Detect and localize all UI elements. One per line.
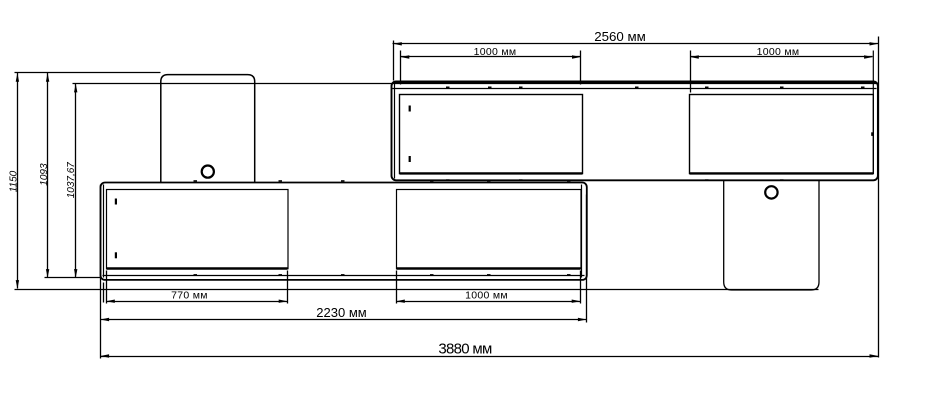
svg-text:2230 мм: 2230 мм — [316, 305, 366, 320]
svg-text:1037,67: 1037,67 — [66, 162, 77, 199]
svg-text:770 мм: 770 мм — [171, 290, 208, 302]
svg-text:2560 мм: 2560 мм — [594, 29, 646, 44]
svg-text:1000 мм: 1000 мм — [474, 46, 517, 58]
svg-text:3880 мм: 3880 мм — [438, 340, 492, 357]
svg-text:1000 мм: 1000 мм — [757, 46, 800, 58]
svg-text:1150: 1150 — [8, 170, 19, 192]
svg-text:1000 мм: 1000 мм — [465, 290, 508, 302]
svg-text:1093: 1093 — [39, 163, 50, 186]
